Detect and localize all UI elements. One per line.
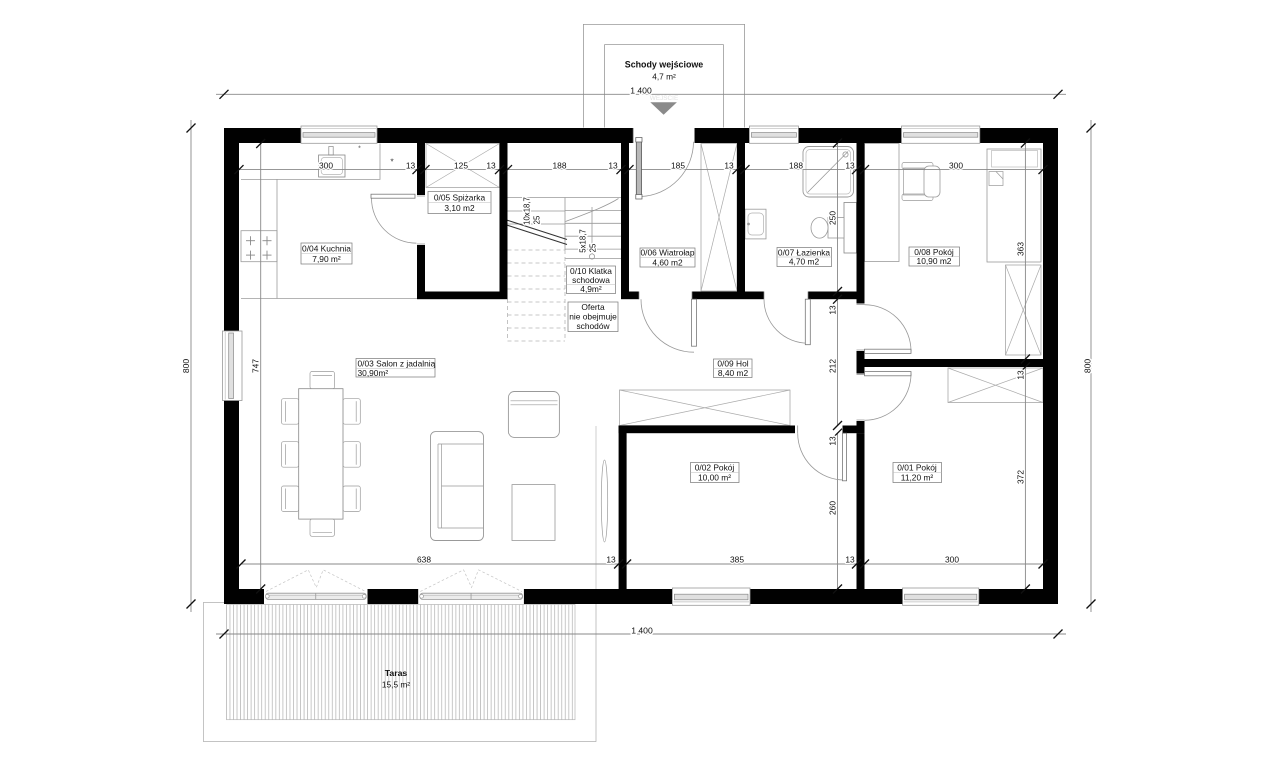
svg-text:260: 260 (828, 501, 838, 515)
svg-text:25: 25 (589, 243, 598, 252)
svg-text:125: 125 (454, 160, 468, 170)
svg-text:15,5 m²: 15,5 m² (382, 680, 410, 690)
svg-text:*: * (358, 146, 361, 153)
svg-text:13: 13 (828, 305, 838, 315)
svg-text:13: 13 (406, 160, 416, 170)
svg-text:363: 363 (1016, 242, 1026, 256)
svg-text:747: 747 (251, 359, 261, 373)
svg-text:0/02 Pokój: 0/02 Pokój (695, 463, 735, 473)
svg-text:25: 25 (533, 215, 542, 224)
svg-text:372: 372 (1016, 470, 1026, 484)
svg-text:Schody wejściowe: Schody wejściowe (625, 59, 703, 69)
svg-text:0/01 Pokój: 0/01 Pokój (897, 463, 937, 473)
svg-text:13: 13 (724, 160, 734, 170)
svg-text:800: 800 (181, 359, 191, 374)
svg-text:300: 300 (319, 160, 333, 170)
svg-text:7,90 m²: 7,90 m² (312, 254, 341, 264)
svg-text:0/04 Kuchnia: 0/04 Kuchnia (302, 244, 351, 254)
svg-text:10,90 m2: 10,90 m2 (917, 256, 952, 266)
svg-text:11,20 m²: 11,20 m² (901, 473, 934, 483)
svg-text:5x18,7: 5x18,7 (579, 229, 588, 252)
svg-text:schodów: schodów (576, 321, 610, 331)
svg-text:638: 638 (417, 555, 431, 565)
svg-text:4,9m²: 4,9m² (580, 284, 602, 294)
svg-text:212: 212 (828, 359, 838, 373)
svg-text:4,7 m²: 4,7 m² (652, 71, 676, 81)
svg-text:4,70 m2: 4,70 m2 (789, 257, 820, 267)
svg-text:0/06 Wiatrołap: 0/06 Wiatrołap (641, 248, 695, 258)
svg-text:8,40 m2: 8,40 m2 (718, 368, 749, 378)
svg-text:13: 13 (828, 436, 838, 446)
svg-text:13: 13 (1016, 370, 1026, 380)
svg-text:13: 13 (608, 160, 618, 170)
svg-text:13: 13 (845, 555, 855, 565)
svg-text:Taras: Taras (385, 668, 408, 678)
svg-text:800: 800 (1082, 359, 1092, 374)
svg-text:4,60 m2: 4,60 m2 (652, 257, 683, 267)
svg-text:13: 13 (486, 160, 496, 170)
svg-text:185: 185 (671, 160, 685, 170)
svg-text:10x18,7: 10x18,7 (523, 197, 532, 225)
svg-text:10,00 m²: 10,00 m² (698, 473, 731, 483)
svg-text:250: 250 (828, 211, 838, 225)
svg-text:385: 385 (730, 555, 744, 565)
svg-text:13: 13 (606, 555, 616, 565)
svg-text:300: 300 (949, 160, 963, 170)
svg-text:30,90m²: 30,90m² (358, 368, 389, 378)
svg-text:13: 13 (845, 160, 855, 170)
svg-text:1 400: 1 400 (630, 86, 652, 96)
svg-text:1 400: 1 400 (631, 625, 653, 635)
svg-text:300: 300 (945, 555, 959, 565)
svg-text:0/05 Spiżarka: 0/05 Spiżarka (434, 193, 486, 203)
svg-text:Oferta: Oferta (581, 302, 605, 312)
svg-text:nie obejmuje: nie obejmuje (569, 312, 617, 322)
svg-text:188: 188 (789, 160, 803, 170)
svg-text:188: 188 (553, 160, 567, 170)
svg-text:3,10 m2: 3,10 m2 (444, 203, 475, 213)
